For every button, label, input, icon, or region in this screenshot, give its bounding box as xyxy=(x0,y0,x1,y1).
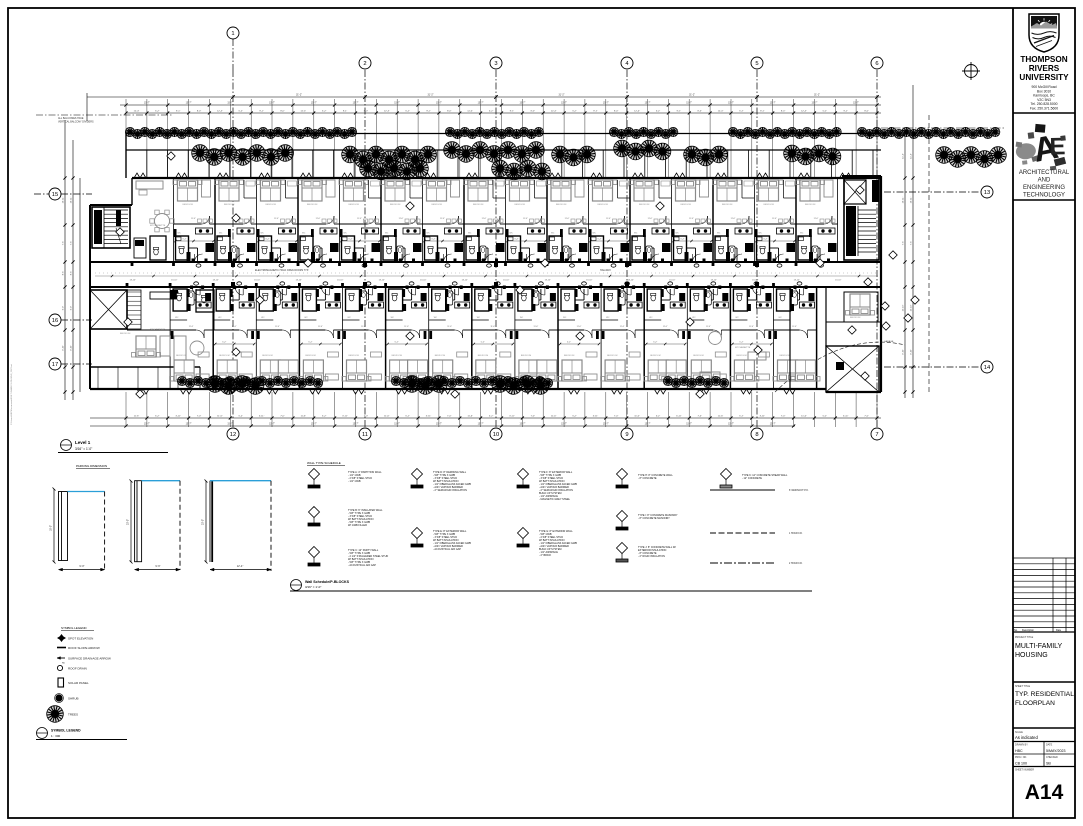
svg-text:PROJ. NO.: PROJ. NO. xyxy=(1015,756,1027,759)
svg-text:1: 1 xyxy=(231,31,234,37)
svg-text:ROOF SLOPE ARROW: ROOF SLOPE ARROW xyxy=(68,646,100,650)
svg-text:HOUSING: HOUSING xyxy=(1015,652,1048,659)
svg-text:WC: WC xyxy=(218,317,222,319)
svg-text:12'-4": 12'-4" xyxy=(467,111,473,113)
svg-text:9'-10": 9'-10" xyxy=(71,345,73,351)
svg-text:BEDROOM: BEDROOM xyxy=(120,333,131,335)
svg-text:5'-2": 5'-2" xyxy=(739,342,743,344)
svg-text:KITCHENETTE: KITCHENETTE xyxy=(150,329,166,331)
svg-text:3'-11": 3'-11" xyxy=(259,416,265,418)
svg-text:11'-4": 11'-4" xyxy=(911,153,913,159)
svg-text:5'-2": 5'-2" xyxy=(515,239,519,241)
svg-text:ARCHITECTURAL: ARCHITECTURAL xyxy=(1019,170,1070,176)
svg-text:5'-2": 5'-2" xyxy=(239,111,244,113)
svg-text:13'-10": 13'-10" xyxy=(794,280,800,282)
svg-text:12'-4": 12'-4" xyxy=(634,111,640,113)
svg-text:WC: WC xyxy=(348,317,352,319)
svg-text:11'-6": 11'-6" xyxy=(301,416,307,418)
svg-text:7'-0": 7'-0" xyxy=(364,416,369,418)
svg-text:BEDROOM: BEDROOM xyxy=(515,204,526,206)
svg-text:31'-2": 31'-2" xyxy=(296,93,302,96)
svg-text:9'-10": 9'-10" xyxy=(903,349,905,355)
svg-text:13: 13 xyxy=(984,190,990,196)
svg-text:WC: WC xyxy=(344,233,348,235)
svg-text:7'-0": 7'-0" xyxy=(197,416,202,418)
svg-text:9'-6": 9'-6" xyxy=(155,564,160,568)
svg-text:FLOORPLAN: FLOORPLAN xyxy=(1015,700,1055,707)
svg-text:5'-2": 5'-2" xyxy=(395,342,399,344)
svg-text:BEDROOM: BEDROOM xyxy=(183,204,194,206)
svg-text:C:\Users\HBC\Documents\MULTI-F: C:\Users\HBC\Documents\MULTI-FAMILY HOUS… xyxy=(10,364,13,425)
svg-text:5'-2": 5'-2" xyxy=(266,239,270,241)
svg-text:BEDROOM: BEDROOM xyxy=(349,355,360,357)
svg-text:WC: WC xyxy=(779,317,783,319)
svg-text:3'-11": 3'-11" xyxy=(509,416,515,418)
svg-text:11'-6": 11'-6" xyxy=(648,218,653,220)
svg-text:3'-11": 3'-11" xyxy=(760,416,766,418)
svg-text:BEDROOM: BEDROOM xyxy=(307,204,318,206)
svg-text:11'-6": 11'-6" xyxy=(490,326,495,328)
svg-text:SHEET NUMBER: SHEET NUMBER xyxy=(1015,769,1034,772)
svg-text:No.: No. xyxy=(1014,629,1018,632)
svg-text:WC: WC xyxy=(391,317,395,319)
svg-text:8'-0": 8'-0" xyxy=(280,111,285,113)
svg-text:11'-6": 11'-6" xyxy=(620,326,625,328)
svg-text:7'-5": 7'-5" xyxy=(71,241,73,246)
svg-text:31'-2": 31'-2" xyxy=(814,93,820,96)
svg-text:WC: WC xyxy=(304,317,308,319)
svg-text:BEDROOM: BEDROOM xyxy=(305,355,316,357)
svg-text:13'-10": 13'-10" xyxy=(586,280,592,282)
svg-text:WC: WC xyxy=(649,317,653,319)
svg-text:9'-9": 9'-9" xyxy=(71,306,73,311)
svg-text:17: 17 xyxy=(52,362,58,368)
svg-text:9'-1": 9'-1" xyxy=(176,111,181,113)
svg-text:SPOT ELEVATION: SPOT ELEVATION xyxy=(68,636,93,640)
svg-text:5'-2": 5'-2" xyxy=(155,111,160,113)
svg-text:AND: AND xyxy=(1038,178,1051,184)
svg-text:7: 7 xyxy=(875,432,878,438)
svg-text:5'-2": 5'-2" xyxy=(572,111,577,113)
svg-text:5: 5 xyxy=(755,61,758,67)
svg-text:ELECTROMAGNETIC HOLD OPEN DOOR: ELECTROMAGNETIC HOLD OPEN DOORS TYP. xyxy=(255,269,309,272)
svg-text:5'-2": 5'-2" xyxy=(823,416,828,418)
svg-text:WALL TYPE SCHEDULE: WALL TYPE SCHEDULE xyxy=(307,461,341,465)
svg-text:5'-2": 5'-2" xyxy=(432,239,436,241)
svg-text:BEDROOM: BEDROOM xyxy=(478,355,489,357)
svg-text:WC: WC xyxy=(606,317,610,319)
svg-text:10'-11": 10'-11" xyxy=(63,196,65,203)
svg-text:10: 10 xyxy=(493,432,499,438)
svg-text:12'-4": 12'-4" xyxy=(801,111,807,113)
svg-text:CB 100: CB 100 xyxy=(1015,762,1027,766)
svg-text:13'-10": 13'-10" xyxy=(711,280,717,282)
svg-text:11'-6": 11'-6" xyxy=(399,218,404,220)
svg-text:8'-0": 8'-0" xyxy=(364,111,369,113)
svg-text:15: 15 xyxy=(52,192,58,198)
svg-text:11'-6": 11'-6" xyxy=(217,416,223,418)
svg-text:5'-2": 5'-2" xyxy=(405,416,410,418)
svg-text:BEDROOM: BEDROOM xyxy=(805,204,816,206)
svg-text:BEDROOM: BEDROOM xyxy=(392,355,403,357)
svg-text:5'-2": 5'-2" xyxy=(322,111,327,113)
svg-text:11'-6": 11'-6" xyxy=(191,218,196,220)
svg-text:KITCHENETTE: KITCHENETTE xyxy=(150,225,166,227)
svg-text:1 HOUR F.R.: 1 HOUR F.R. xyxy=(789,533,803,535)
svg-text:WC: WC xyxy=(759,233,763,235)
svg-text:WC: WC xyxy=(302,233,306,235)
svg-text:- 2" BRICK: - 2" BRICK xyxy=(539,554,551,557)
svg-text:5'-2": 5'-2" xyxy=(598,239,602,241)
svg-text:11'-6": 11'-6" xyxy=(689,218,694,220)
svg-text:3'-11": 3'-11" xyxy=(593,416,599,418)
svg-text:12'-4": 12'-4" xyxy=(384,111,390,113)
svg-text:- ACOUSTICAL AIR GAP: - ACOUSTICAL AIR GAP xyxy=(348,564,376,567)
svg-text:11'-6": 11'-6" xyxy=(274,218,279,220)
svg-text:9'-1": 9'-1" xyxy=(343,111,348,113)
svg-text:3'-11": 3'-11" xyxy=(426,416,432,418)
svg-text:7'-0": 7'-0" xyxy=(280,416,285,418)
svg-text:31'-2": 31'-2" xyxy=(427,93,433,96)
svg-text:3: 3 xyxy=(494,61,497,67)
svg-text:3'-11": 3'-11" xyxy=(676,416,682,418)
svg-text:12'-4": 12'-4" xyxy=(718,111,724,113)
svg-text:12'-4": 12'-4" xyxy=(217,111,223,113)
svg-text:BEDROOM: BEDROOM xyxy=(736,355,747,357)
svg-text:8'-0": 8'-0" xyxy=(698,111,703,113)
svg-text:13'-10": 13'-10" xyxy=(379,280,385,282)
svg-text:11'-6": 11'-6" xyxy=(663,326,668,328)
svg-text:31'-2": 31'-2" xyxy=(689,93,695,96)
svg-text:ENGINEERING: ENGINEERING xyxy=(1023,185,1065,191)
svg-text:11'-4": 11'-4" xyxy=(903,153,905,159)
svg-text:12: 12 xyxy=(230,432,236,438)
svg-text:WC: WC xyxy=(634,233,638,235)
svg-text:BEDROOM: BEDROOM xyxy=(722,204,733,206)
svg-text:3/16" = 1'-0": 3/16" = 1'-0" xyxy=(75,447,92,451)
svg-text:BEDROOM: BEDROOM xyxy=(607,355,618,357)
svg-text:- 12" CONCRETE: - 12" CONCRETE xyxy=(742,477,762,480)
svg-text:SOLAR PANEL: SOLAR PANEL xyxy=(68,681,89,685)
svg-text:BEDROOM: BEDROOM xyxy=(266,204,277,206)
svg-text:Date: Date xyxy=(1056,629,1062,632)
svg-text:11'-6": 11'-6" xyxy=(577,326,582,328)
svg-text:11'-6": 11'-6" xyxy=(316,218,321,220)
svg-text:12'-4": 12'-4" xyxy=(134,111,140,113)
svg-text:11'-6": 11'-6" xyxy=(792,326,797,328)
svg-text:KITCHENETTE: KITCHENETTE xyxy=(735,347,751,349)
svg-text:5'-2": 5'-2" xyxy=(322,416,327,418)
svg-text:9'-1": 9'-1" xyxy=(593,111,598,113)
svg-text:9: 9 xyxy=(625,432,628,438)
svg-text:BEDROOM: BEDROOM xyxy=(473,204,484,206)
svg-text:TECHNOLOGY: TECHNOLOGY xyxy=(1023,193,1065,199)
svg-text:6: 6 xyxy=(875,61,878,67)
svg-text:8'-0": 8'-0" xyxy=(614,111,619,113)
svg-text:8'-0": 8'-0" xyxy=(447,111,452,113)
svg-text:CHECKED: CHECKED xyxy=(1046,756,1058,759)
svg-text:10'-11": 10'-11" xyxy=(903,196,905,203)
svg-text:11'-6": 11'-6" xyxy=(361,326,366,328)
svg-text:TYP. RESIDENTIAL: TYP. RESIDENTIAL xyxy=(1015,691,1074,698)
svg-text:11'-6": 11'-6" xyxy=(357,218,362,220)
svg-text:9'-10": 9'-10" xyxy=(911,349,913,355)
svg-text:11'-6": 11'-6" xyxy=(718,416,724,418)
svg-text:18'-0": 18'-0" xyxy=(50,525,53,531)
svg-text:7'-0": 7'-0" xyxy=(698,416,703,418)
svg-text:13'-10": 13'-10" xyxy=(213,280,219,282)
svg-text:13'-10": 13'-10" xyxy=(296,280,302,282)
svg-text:- 8" CONCRETE MASONRY: - 8" CONCRETE MASONRY xyxy=(638,517,670,520)
svg-text:11'-6": 11'-6" xyxy=(606,218,611,220)
svg-text:2: 2 xyxy=(363,61,366,67)
svg-text:UNIVERSITY: UNIVERSITY xyxy=(1019,73,1069,82)
svg-text:WC: WC xyxy=(385,233,389,235)
svg-text:11'-6": 11'-6" xyxy=(772,218,777,220)
svg-text:11'-6": 11'-6" xyxy=(467,416,473,418)
svg-text:31'-2": 31'-2" xyxy=(558,93,564,96)
svg-text:BEDROOM: BEDROOM xyxy=(850,317,861,319)
svg-text:BEDROOM: BEDROOM xyxy=(521,355,532,357)
svg-text:5'-2": 5'-2" xyxy=(739,111,744,113)
svg-text:10'-11": 10'-11" xyxy=(71,196,73,203)
svg-text:11'-6": 11'-6" xyxy=(706,326,711,328)
svg-text:WC: WC xyxy=(692,317,696,319)
svg-text:WC: WC xyxy=(477,317,481,319)
svg-text:5'-2": 5'-2" xyxy=(823,111,828,113)
svg-text:5'-2": 5'-2" xyxy=(739,416,744,418)
svg-text:13'-10": 13'-10" xyxy=(911,304,913,311)
svg-text:As indicated: As indicated xyxy=(1015,735,1038,740)
svg-text:5'-2": 5'-2" xyxy=(567,342,571,344)
svg-text:9'-1": 9'-1" xyxy=(677,111,682,113)
svg-text:WC: WC xyxy=(219,233,223,235)
svg-text:Wall Schedule/P-BLOCKS: Wall Schedule/P-BLOCKS xyxy=(305,580,350,584)
svg-text:5'-2": 5'-2" xyxy=(656,416,661,418)
svg-text:11'-6": 11'-6" xyxy=(551,416,557,418)
svg-text:HBC: HBC xyxy=(1015,749,1023,753)
svg-text:WC: WC xyxy=(427,233,431,235)
svg-text:12'-4": 12'-4" xyxy=(551,111,557,113)
svg-text:PARKING DIMENSION: PARKING DIMENSION xyxy=(76,464,107,468)
svg-text:GARAGE: GARAGE xyxy=(884,340,894,343)
svg-text:BEDROOM: BEDROOM xyxy=(435,355,446,357)
svg-text:13'-10": 13'-10" xyxy=(628,280,634,282)
svg-text:WC: WC xyxy=(175,317,179,319)
svg-text:BEDROOM: BEDROOM xyxy=(780,355,791,357)
svg-text:11'-6": 11'-6" xyxy=(814,218,819,220)
svg-text:9'-1": 9'-1" xyxy=(510,111,515,113)
svg-text:5'-2": 5'-2" xyxy=(489,111,494,113)
svg-text:SB: SB xyxy=(1046,762,1051,766)
svg-text:11'-6": 11'-6" xyxy=(384,416,390,418)
svg-text:WC: WC xyxy=(261,317,265,319)
svg-text:20'-0": 20'-0" xyxy=(202,519,205,525)
svg-text:HALLWAY: HALLWAY xyxy=(600,269,611,272)
svg-text:8'-0": 8'-0" xyxy=(197,111,202,113)
svg-text:11'-6": 11'-6" xyxy=(404,326,409,328)
svg-text:11'-6": 11'-6" xyxy=(232,326,237,328)
svg-text:WC: WC xyxy=(261,233,265,235)
svg-text:13'-10": 13'-10" xyxy=(462,280,468,282)
svg-text:WC: WC xyxy=(510,233,514,235)
svg-text:WC: WC xyxy=(468,233,472,235)
svg-text:12'-4": 12'-4" xyxy=(301,111,307,113)
svg-text:9'-1": 9'-1" xyxy=(426,111,431,113)
svg-text:11'-6": 11'-6" xyxy=(275,326,280,328)
svg-text:11'-6": 11'-6" xyxy=(634,416,640,418)
svg-text:5/MAY/2023: 5/MAY/2023 xyxy=(1046,749,1066,753)
svg-text:BEDROOM: BEDROOM xyxy=(556,204,567,206)
svg-text:Description: Description xyxy=(1022,629,1035,632)
svg-text:5'-2": 5'-2" xyxy=(155,416,160,418)
svg-text:3/16" = 1'-0": 3/16" = 1'-0" xyxy=(305,585,321,589)
svg-text:WC: WC xyxy=(800,233,804,235)
svg-text:- ACOUSTICAL AIR GAP: - ACOUSTICAL AIR GAP xyxy=(433,548,461,551)
svg-text:TREES: TREES xyxy=(68,713,78,717)
svg-text:- 1/2" GWB: - 1/2" GWB xyxy=(348,480,361,483)
svg-text:11'-6": 11'-6" xyxy=(534,326,539,328)
svg-text:BEDROOM: BEDROOM xyxy=(639,204,650,206)
svg-text:10'-11": 10'-11" xyxy=(911,196,913,203)
svg-text:BEDROOM: BEDROOM xyxy=(390,204,401,206)
svg-text:13'-10": 13'-10" xyxy=(545,280,551,282)
svg-text:SYMBOL LEGEND: SYMBOL LEGEND xyxy=(61,626,87,630)
svg-text:BEDROOM: BEDROOM xyxy=(681,204,692,206)
svg-text:13'-10": 13'-10" xyxy=(835,280,841,282)
svg-text:DATE: DATE xyxy=(1046,744,1053,747)
svg-text:5'-2": 5'-2" xyxy=(764,239,768,241)
svg-text:SCALE: SCALE xyxy=(1015,731,1023,734)
svg-text:8'-0": 8'-0" xyxy=(864,111,869,113)
svg-text:RIVERS: RIVERS xyxy=(1029,64,1060,73)
svg-text:13'-10": 13'-10" xyxy=(130,280,136,282)
svg-text:BEDROOM: BEDROOM xyxy=(564,355,575,357)
svg-text:BEDROOM: BEDROOM xyxy=(598,204,609,206)
svg-text:Fax. 250.371.5600: Fax. 250.371.5600 xyxy=(1030,107,1058,111)
svg-text:3'-11": 3'-11" xyxy=(175,416,181,418)
svg-text:11'-6": 11'-6" xyxy=(801,416,807,418)
svg-text:7'-0": 7'-0" xyxy=(864,416,869,418)
svg-text:9'-1": 9'-1" xyxy=(760,111,765,113)
svg-text:2 HOUR F.R.: 2 HOUR F.R. xyxy=(789,563,803,565)
svg-text:5'-2": 5'-2" xyxy=(222,342,226,344)
svg-text:13'-10": 13'-10" xyxy=(254,280,260,282)
svg-text:12'-4": 12'-4" xyxy=(237,564,244,568)
svg-text:SYMBOL LEGEND: SYMBOL LEGEND xyxy=(51,729,81,733)
svg-text:PROJECT TITLE: PROJECT TITLE xyxy=(1015,636,1034,639)
svg-text:9'-1": 9'-1" xyxy=(259,111,264,113)
svg-text:20'-0": 20'-0" xyxy=(127,519,130,525)
svg-text:8: 8 xyxy=(755,432,758,438)
svg-text:11'-6": 11'-6" xyxy=(189,326,194,328)
svg-text:7'-0": 7'-0" xyxy=(781,416,786,418)
svg-text:9'-0": 9'-0" xyxy=(79,564,84,568)
svg-text:13'-10": 13'-10" xyxy=(903,304,905,311)
svg-text:9'-10": 9'-10" xyxy=(63,345,65,351)
svg-text:A14: A14 xyxy=(1025,781,1064,804)
svg-text:5'-2": 5'-2" xyxy=(489,416,494,418)
svg-text:DRAWN BY: DRAWN BY xyxy=(1015,744,1028,747)
svg-text:5'-2": 5'-2" xyxy=(308,342,312,344)
svg-text:7'-5": 7'-5" xyxy=(63,241,65,246)
svg-text:5'-2": 5'-2" xyxy=(572,416,577,418)
svg-text:16: 16 xyxy=(52,318,58,324)
svg-text:WC: WC xyxy=(593,233,597,235)
svg-text:13'-10": 13'-10" xyxy=(669,280,675,282)
svg-text:THOMPSON: THOMPSON xyxy=(1020,55,1067,64)
svg-text:W/ GWB FILLER: W/ GWB FILLER xyxy=(348,524,367,527)
svg-text:5'-2": 5'-2" xyxy=(681,239,685,241)
svg-text:11'-6": 11'-6" xyxy=(482,218,487,220)
svg-text:13'-10": 13'-10" xyxy=(503,280,509,282)
svg-text:VERTICAL BALCONY DIVIDERS: VERTICAL BALCONY DIVIDERS xyxy=(58,121,94,124)
svg-text:8'-5": 8'-5" xyxy=(63,271,65,276)
svg-text:14: 14 xyxy=(984,365,991,371)
svg-text:BEDROOM: BEDROOM xyxy=(650,355,661,357)
svg-text:WC: WC xyxy=(520,317,524,319)
svg-text:8'-0": 8'-0" xyxy=(531,111,536,113)
svg-text:SHEET TITLE: SHEET TITLE xyxy=(1015,685,1030,688)
svg-text:BEDROOM: BEDROOM xyxy=(224,204,235,206)
svg-text:MULTI-FAMILY: MULTI-FAMILY xyxy=(1015,643,1063,650)
svg-text:5'-2": 5'-2" xyxy=(349,239,353,241)
svg-text:5'-2": 5'-2" xyxy=(405,111,410,113)
svg-text:BEDROOM: BEDROOM xyxy=(176,355,187,357)
svg-text:7'-0": 7'-0" xyxy=(614,416,619,418)
svg-text:11'-6": 11'-6" xyxy=(565,218,570,220)
svg-text:WC: WC xyxy=(434,317,438,319)
svg-text:5'-2": 5'-2" xyxy=(183,239,187,241)
svg-text:3'-11": 3'-11" xyxy=(342,416,348,418)
svg-text:5'-2": 5'-2" xyxy=(653,342,657,344)
svg-text:BEDROOM: BEDROOM xyxy=(262,355,273,357)
svg-text:3'-11": 3'-11" xyxy=(843,416,849,418)
svg-text:11'-6": 11'-6" xyxy=(523,218,528,220)
svg-text:13'-10": 13'-10" xyxy=(171,280,177,282)
svg-text:7'-5": 7'-5" xyxy=(911,241,913,246)
svg-text:7'-0": 7'-0" xyxy=(531,416,536,418)
svg-text:BEDROOM: BEDROOM xyxy=(349,204,360,206)
svg-text:WC: WC xyxy=(178,233,182,235)
svg-text:BEDROOM: BEDROOM xyxy=(219,355,230,357)
svg-text:- MAGNETIC GREY STEEL: - MAGNETIC GREY STEEL xyxy=(539,498,571,501)
svg-text:11'-6": 11'-6" xyxy=(447,326,452,328)
svg-text:11'-6": 11'-6" xyxy=(440,218,445,220)
svg-text:5'-2": 5'-2" xyxy=(239,416,244,418)
svg-text:- 2" SEMI-RIGID INSULATION: - 2" SEMI-RIGID INSULATION xyxy=(433,489,467,492)
svg-text:BEDROOM: BEDROOM xyxy=(693,355,704,357)
svg-text:8'-5": 8'-5" xyxy=(71,271,73,276)
svg-text:11'-6": 11'-6" xyxy=(749,326,754,328)
svg-text:SHRUB: SHRUB xyxy=(68,697,79,701)
svg-text:7'-5": 7'-5" xyxy=(903,241,905,246)
svg-text:WC: WC xyxy=(563,317,567,319)
svg-text:8'-0": 8'-0" xyxy=(781,111,786,113)
svg-text:13'-10": 13'-10" xyxy=(337,280,343,282)
svg-text:BEDROOM: BEDROOM xyxy=(764,204,775,206)
svg-text:5'-2": 5'-2" xyxy=(656,111,661,113)
svg-text:WC: WC xyxy=(551,233,555,235)
svg-text:BEDROOM: BEDROOM xyxy=(432,204,443,206)
svg-text:13'-10": 13'-10" xyxy=(420,280,426,282)
svg-text:11'-6": 11'-6" xyxy=(731,218,736,220)
svg-text:Level 1: Level 1 xyxy=(75,440,91,445)
svg-text:11'-6": 11'-6" xyxy=(134,416,140,418)
svg-text:WC: WC xyxy=(735,317,739,319)
svg-text:11'-6": 11'-6" xyxy=(318,326,323,328)
svg-text:SURFACE DRAINAGE ARROW: SURFACE DRAINAGE ARROW xyxy=(68,657,111,661)
